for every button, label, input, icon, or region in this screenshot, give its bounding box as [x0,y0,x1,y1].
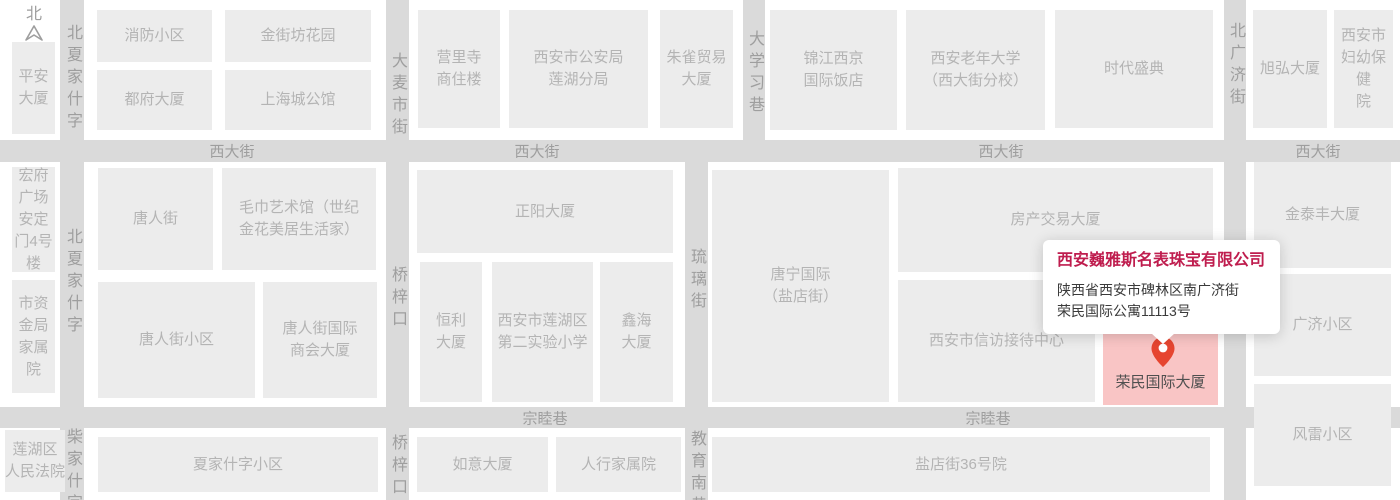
building-label-line: 院 [1356,91,1371,113]
building-label-line: 唐人街国际 [282,318,357,340]
popup-tail [1151,333,1175,344]
building-label-line: 西安市公安局 [533,47,623,69]
building-label-line: 人行家属院 [581,454,656,476]
street-name-label: 西大街 [514,141,559,162]
building-label-line: 楼 [26,253,41,275]
building-block: 西安市莲湖区第二实验小学 [492,262,593,402]
popup-title: 西安巍雅斯名表珠宝有限公司 [1057,250,1266,272]
street-name-label: 宗睦巷 [965,408,1010,429]
building-label-line: 唐人街 [133,208,178,230]
street-name-label: 大学习巷 [746,30,762,118]
building-label-line: 西安市信访接待中心 [929,330,1064,352]
building-block: 营里寺商住楼 [418,10,500,128]
building-label-line: 夏家什字小区 [193,454,283,476]
street-name-label: 西大街 [209,141,254,162]
street-name-label: 北夏家什字 [64,228,80,338]
building-block: 上海城公馆 [225,70,371,130]
building-label-line: （盐店街） [763,286,838,308]
building-label-line: 广场 [18,187,48,209]
street-name-label: 桥梓口 [389,266,405,332]
building-block: 正阳大厦 [417,170,673,253]
building-block: 夏家什字小区 [98,437,378,492]
building-label-line: 大厦 [436,332,466,354]
compass-north: 北 [22,6,46,41]
building-block: 鑫海大厦 [600,262,673,402]
street-name-label: 宗睦巷 [522,408,567,429]
building-block: 人行家属院 [556,437,681,492]
building-label-line: 风雷小区 [1292,424,1352,446]
street-name-label: 琉璃街 [688,248,704,314]
building-label-line: 鑫海 [621,310,651,332]
building-label-line: 唐人街小区 [139,329,214,351]
street-name-label: 北广济街 [1227,22,1243,110]
building-label-line: 旭弘大厦 [1260,58,1320,80]
info-popup[interactable]: 西安巍雅斯名表珠宝有限公司 陕西省西安市碑林区南广济街 荣民国际公寓11113号 [1043,240,1280,334]
building-label-line: 恒利 [436,310,466,332]
building-block: 盐店街36号院 [712,437,1210,492]
building-label-line: 商住楼 [436,69,481,91]
building-label-line: 如意大厦 [452,454,512,476]
building-label-line: 上海城公馆 [260,89,335,111]
building-label-line: 金街坊花园 [260,25,335,47]
building-block: 毛巾艺术馆（世纪金花美居生活家） [222,168,376,270]
building-block: 西安老年大学（西大街分校） [906,10,1045,130]
building-block: 唐人街国际商会大厦 [263,282,377,398]
building-label-line: 市资 [18,293,48,315]
building-block: 锦江西京国际饭店 [770,10,897,130]
building-block: 宏府广场安定门4号楼 [12,167,55,272]
building-label-line: 西安市 [1341,25,1386,47]
popup-address-line1: 陕西省西安市碑林区南广济街 [1057,280,1266,301]
building-label-line: 盐店街36号院 [915,454,1007,476]
building-label-line: 金局 [18,315,48,337]
building-label-line: 广济小区 [1292,314,1352,336]
building-label-line: 莲湖区 [12,439,57,461]
building-label-line: 商会大厦 [290,340,350,362]
building-block: 恒利大厦 [420,262,482,402]
building-label-line: 正阳大厦 [515,201,575,223]
building-label-line: 大厦 [621,332,651,354]
building-label-line: 金泰丰大厦 [1285,204,1360,226]
street-name-label: 北夏家什字 [64,24,80,134]
building-label-line: 妇幼保健 [1334,47,1393,91]
building-label-line: 院 [26,359,41,381]
building-block: 唐人街小区 [98,282,255,398]
compass-north-label: 北 [26,6,42,24]
building-block: 朱雀贸易大厦 [660,10,733,128]
building-label-line: 莲湖分局 [548,69,608,91]
building-label-line: 时代盛典 [1104,58,1164,80]
building-block: 金街坊花园 [225,10,371,62]
building-label-line: 金花美居生活家） [239,219,359,241]
popup-address-line2: 荣民国际公寓11113号 [1057,301,1266,322]
building-block: 莲湖区人民法院 [5,430,65,492]
building-label-line: 宏府 [18,165,48,187]
building-label-line: 平安 [18,66,48,88]
street-name-label: 柴家什字 [64,428,80,500]
building-label-line: 锦江西京 [803,48,863,70]
building-block: 唐宁国际（盐店街） [712,170,889,402]
building-label-line: 房产交易大厦 [1010,209,1100,231]
building-label-line: 国际饭店 [803,70,863,92]
compass-north-arrow-icon [22,25,46,41]
building-label-line: （西大街分校） [923,70,1028,92]
building-block: 平安大厦 [12,42,55,134]
building-label-line: 大厦 [681,69,711,91]
building-label-line: 安定 [18,209,48,231]
building-label-line: 营里寺 [436,47,481,69]
building-block: 唐人街 [98,168,213,270]
building-label-line: 家属 [18,337,48,359]
building-label-line: 人民法院 [5,461,65,483]
building-label-line: 唐宁国际 [770,264,830,286]
street-name-label: 西大街 [1295,141,1340,162]
street-name-label: 西大街 [978,141,1023,162]
building-block: 消防小区 [97,10,212,62]
building-block: 时代盛典 [1055,10,1213,128]
building-block: 如意大厦 [417,437,548,492]
building-label-line: 门4号 [14,231,52,253]
building-block: 西安市妇幼保健院 [1334,10,1393,128]
building-label-line: 西安市莲湖区 [497,310,587,332]
building-label-line: 朱雀贸易 [666,47,726,69]
street-name-label: 大麦市街 [389,52,405,140]
building-label-line: 荣民国际大厦 [1115,372,1205,394]
building-label-line: 消防小区 [124,25,184,47]
street-name-label: 教育南巷 [688,430,704,500]
building-label-line: 第二实验小学 [497,332,587,354]
building-block: 西安市公安局莲湖分局 [509,10,648,128]
building-label-line: 西安老年大学 [930,48,1020,70]
building-label-line: 大厦 [18,88,48,110]
building-block: 风雷小区 [1254,384,1391,486]
street-name-label: 桥梓口 [389,434,405,500]
building-label-line: 都府大厦 [124,89,184,111]
building-block: 市资金局家属院 [12,280,55,393]
building-block: 旭弘大厦 [1253,10,1327,128]
building-block: 都府大厦 [97,70,212,130]
building-label-line: 毛巾艺术馆（世纪 [239,197,359,219]
map-canvas[interactable]: 北 西安巍雅斯名表珠宝有限公司 陕西省西安市碑林区南广济街 荣民国际公寓1111… [0,0,1400,500]
